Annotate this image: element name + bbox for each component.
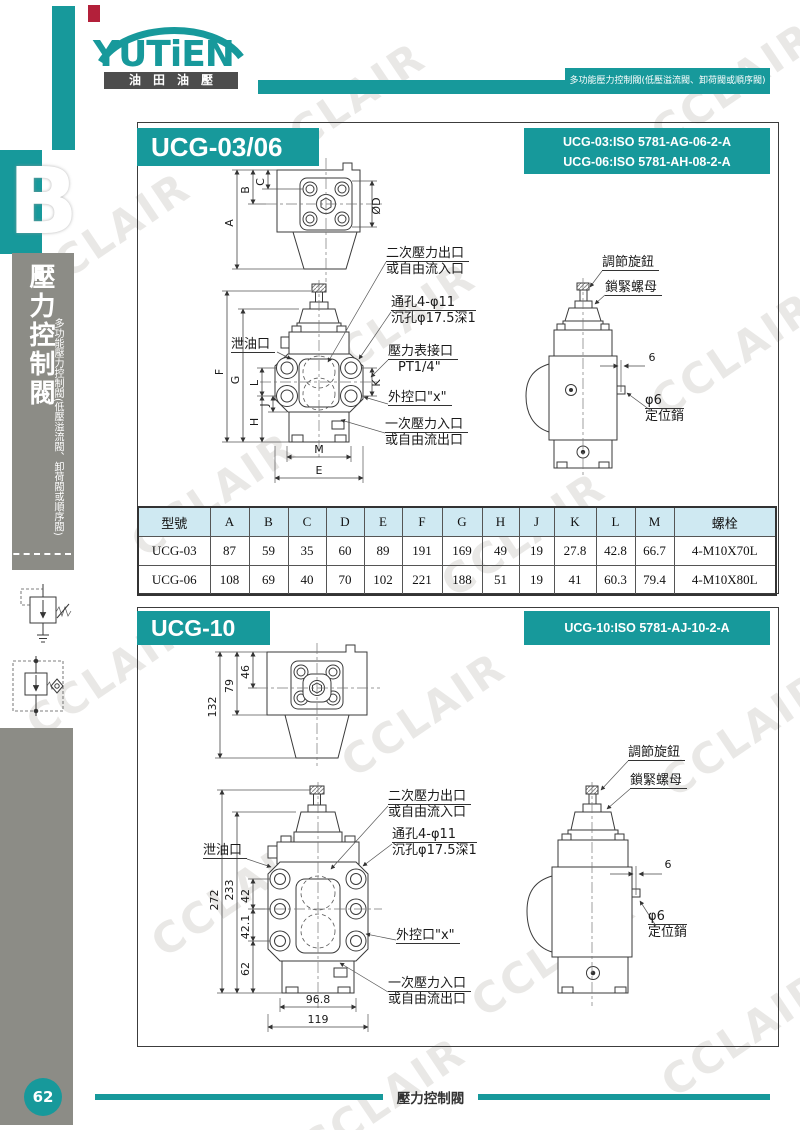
ucg03-front-view: F G L J H K M E: [213, 262, 391, 483]
cell: 69: [249, 566, 288, 596]
cell: 19: [519, 537, 554, 566]
col-header: 型號: [138, 507, 210, 537]
callout-mount-holes: 通孔4-φ11 沉孔φ17.5深1: [391, 295, 476, 326]
dim-label-96-8: 96.8: [306, 993, 331, 1006]
dim-label-B: B: [239, 186, 252, 194]
callout-line: 二次壓力出口: [386, 246, 469, 262]
col-header: B: [249, 507, 288, 537]
brand-logo-subtitle: 油田油壓: [104, 72, 238, 89]
ucg10-front-view: 272 233 42 42.1 62 96.8 119: [208, 782, 396, 1032]
dim-label-pin-offset: 6: [665, 858, 672, 871]
callout-secondary-port: 二次壓力出口 或自由流入口: [388, 789, 471, 820]
dim-label-79: 79: [223, 679, 236, 693]
col-header: L: [596, 507, 635, 537]
ucg10-top-view: 132 79 46: [206, 643, 380, 766]
cell: 70: [326, 566, 364, 596]
callout-primary-port: 一次壓力入口 或自由流出口: [385, 417, 468, 448]
callout-line: φ6: [645, 393, 684, 409]
header-tagline: 多功能壓力控制閥(低壓溢流閥、卸荷閥或順序閥): [565, 68, 770, 94]
callout-line: 通孔4-φ11: [391, 295, 476, 311]
cell: 102: [364, 566, 402, 596]
brand-logo: YUTiEN: [93, 34, 234, 75]
dim-label-272: 272: [208, 890, 221, 911]
iso-code-line: UCG-03:ISO 5781-AG-06-2-A: [524, 132, 770, 152]
col-header: C: [288, 507, 326, 537]
dim-label-K: K: [370, 379, 383, 387]
callout-line: 沉孔φ17.5深1: [391, 311, 476, 326]
dim-label-42-1: 42.1: [239, 915, 252, 940]
ucg03-side-view: 6: [526, 271, 656, 476]
dim-label-46: 46: [239, 665, 252, 679]
callout-gauge-port: 壓力表接口 PT1/4": [388, 344, 458, 375]
callout-line: 一次壓力入口: [385, 417, 468, 433]
cell: 191: [402, 537, 442, 566]
callout-line: 沉孔φ17.5深1: [392, 843, 477, 858]
dim-label-132: 132: [206, 697, 219, 718]
cell: UCG-06: [138, 566, 210, 596]
cell: 4-M10X80L: [674, 566, 776, 596]
section1-iso-codes: UCG-03:ISO 5781-AG-06-2-A UCG-06:ISO 578…: [524, 128, 770, 174]
cell: UCG-03: [138, 537, 210, 566]
dim-label-E: E: [316, 464, 323, 477]
cell: 40: [288, 566, 326, 596]
cell: 188: [442, 566, 482, 596]
cell: 221: [402, 566, 442, 596]
callout-lock-nut: 鎖緊螺母: [630, 773, 687, 789]
cell: 169: [442, 537, 482, 566]
callout-line: 一次壓力入口: [388, 976, 471, 992]
col-header: M: [635, 507, 674, 537]
table-row: UCG-06 108 69 40 70 102 221 188 51 19 41…: [138, 566, 776, 596]
dim-label-pin-offset: 6: [649, 351, 656, 364]
dim-label-M: M: [314, 443, 324, 456]
col-header: A: [210, 507, 249, 537]
col-header: 螺栓: [674, 507, 776, 537]
col-header: E: [364, 507, 402, 537]
iso-code-line: UCG-06:ISO 5781-AH-08-2-A: [524, 152, 770, 172]
cell: 27.8: [554, 537, 596, 566]
callout-line: 壓力表接口: [388, 344, 458, 360]
callout-line: 或自由流入口: [386, 262, 469, 277]
ucg10-side-view: 6: [527, 761, 672, 1006]
dim-label-H: H: [248, 418, 261, 426]
cell: 66.7: [635, 537, 674, 566]
cell: 60.3: [596, 566, 635, 596]
catalog-page: CCLAIR CCLAIR CCLAIR CCLAIR CCLAIR CCLAI…: [0, 0, 800, 1130]
callout-line: 或自由流出口: [385, 433, 468, 448]
callout-external-port: 外控口"x": [396, 928, 460, 944]
cell: 4-M10X70L: [674, 537, 776, 566]
callout-external-port: 外控口"x": [388, 390, 452, 406]
section2-iso-codes: UCG-10:ISO 5781-AJ-10-2-A: [524, 611, 770, 645]
footer-bar-right: [478, 1094, 770, 1100]
callout-adjust-knob: 調節旋鈕: [628, 745, 685, 761]
table-row: UCG-03 87 59 35 60 89 191 169 49 19 27.8…: [138, 537, 776, 566]
col-header: D: [326, 507, 364, 537]
callout-line: 定位銷: [648, 925, 687, 940]
dim-label-J: J: [258, 403, 271, 407]
cell: 89: [364, 537, 402, 566]
callout-line: 或自由流入口: [388, 805, 471, 820]
section1-title: UCG-03/06: [137, 128, 319, 166]
callout-adjust-knob: 調節旋鈕: [602, 255, 659, 271]
callout-line: 鎖緊螺母: [605, 280, 662, 296]
cell: 87: [210, 537, 249, 566]
dimension-table: 型號 A B C D E F G H J K L M 螺栓 UCG-03 87 …: [137, 506, 777, 596]
callout-primary-port: 一次壓力入口 或自由流出口: [388, 976, 471, 1007]
dim-label-42: 42: [239, 889, 252, 903]
col-header: J: [519, 507, 554, 537]
callout-line: 二次壓力出口: [388, 789, 471, 805]
col-header: F: [402, 507, 442, 537]
cell: 49: [482, 537, 519, 566]
callout-line: PT1/4": [388, 360, 458, 375]
callout-line: 調節旋鈕: [602, 255, 659, 271]
footer-bar-left: [95, 1094, 383, 1100]
col-header: K: [554, 507, 596, 537]
callout-line: 外控口"x": [388, 390, 452, 406]
callout-line: 泄油口: [203, 843, 247, 859]
cell: 35: [288, 537, 326, 566]
callout-line: 或自由流出口: [388, 992, 471, 1007]
callout-mount-holes: 通孔4-φ11 沉孔φ17.5深1: [392, 827, 477, 858]
callout-line: 泄油口: [231, 337, 275, 353]
cell: 79.4: [635, 566, 674, 596]
section2-title: UCG-10: [137, 611, 270, 645]
corner-mark: [88, 5, 100, 22]
dim-label-A: A: [223, 219, 236, 227]
dim-label-OD: ØD: [370, 197, 383, 214]
col-header: H: [482, 507, 519, 537]
ucg03-top-view: A B C ØD: [223, 158, 383, 282]
cell: 59: [249, 537, 288, 566]
cell: 42.8: [596, 537, 635, 566]
dim-label-C: C: [254, 178, 267, 186]
callout-locating-pin: φ6 定位銷: [648, 909, 687, 940]
dim-label-L: L: [248, 379, 261, 386]
table-header-row: 型號 A B C D E F G H J K L M 螺栓: [138, 507, 776, 537]
cell: 41: [554, 566, 596, 596]
relief-valve-check-symbol-icon: [13, 656, 63, 716]
iso-code-line: UCG-10:ISO 5781-AJ-10-2-A: [524, 611, 770, 645]
callout-drain-port: 泄油口: [231, 337, 275, 353]
callout-drain-port: 泄油口: [203, 843, 247, 859]
relief-valve-symbol-icon: [21, 584, 71, 642]
footer-title: 壓力控制閥: [383, 1087, 478, 1107]
dim-label-F: F: [213, 369, 226, 375]
dim-label-G: G: [229, 376, 242, 385]
callout-lock-nut: 鎖緊螺母: [605, 280, 662, 296]
callout-secondary-port: 二次壓力出口 或自由流入口: [386, 246, 469, 277]
cell: 19: [519, 566, 554, 596]
callout-line: 外控口"x": [396, 928, 460, 944]
callout-line: 鎖緊螺母: [630, 773, 687, 789]
cell: 60: [326, 537, 364, 566]
callout-line: 定位銷: [645, 409, 684, 424]
callout-line: 通孔4-φ11: [392, 827, 477, 843]
callout-line: 調節旋鈕: [628, 745, 685, 761]
dim-label-62: 62: [239, 962, 252, 976]
dim-label-119: 119: [308, 1013, 329, 1026]
callout-line: φ6: [648, 909, 687, 925]
col-header: G: [442, 507, 482, 537]
dim-label-233: 233: [223, 880, 236, 901]
callout-locating-pin: φ6 定位銷: [645, 393, 684, 424]
cell: 108: [210, 566, 249, 596]
cell: 51: [482, 566, 519, 596]
